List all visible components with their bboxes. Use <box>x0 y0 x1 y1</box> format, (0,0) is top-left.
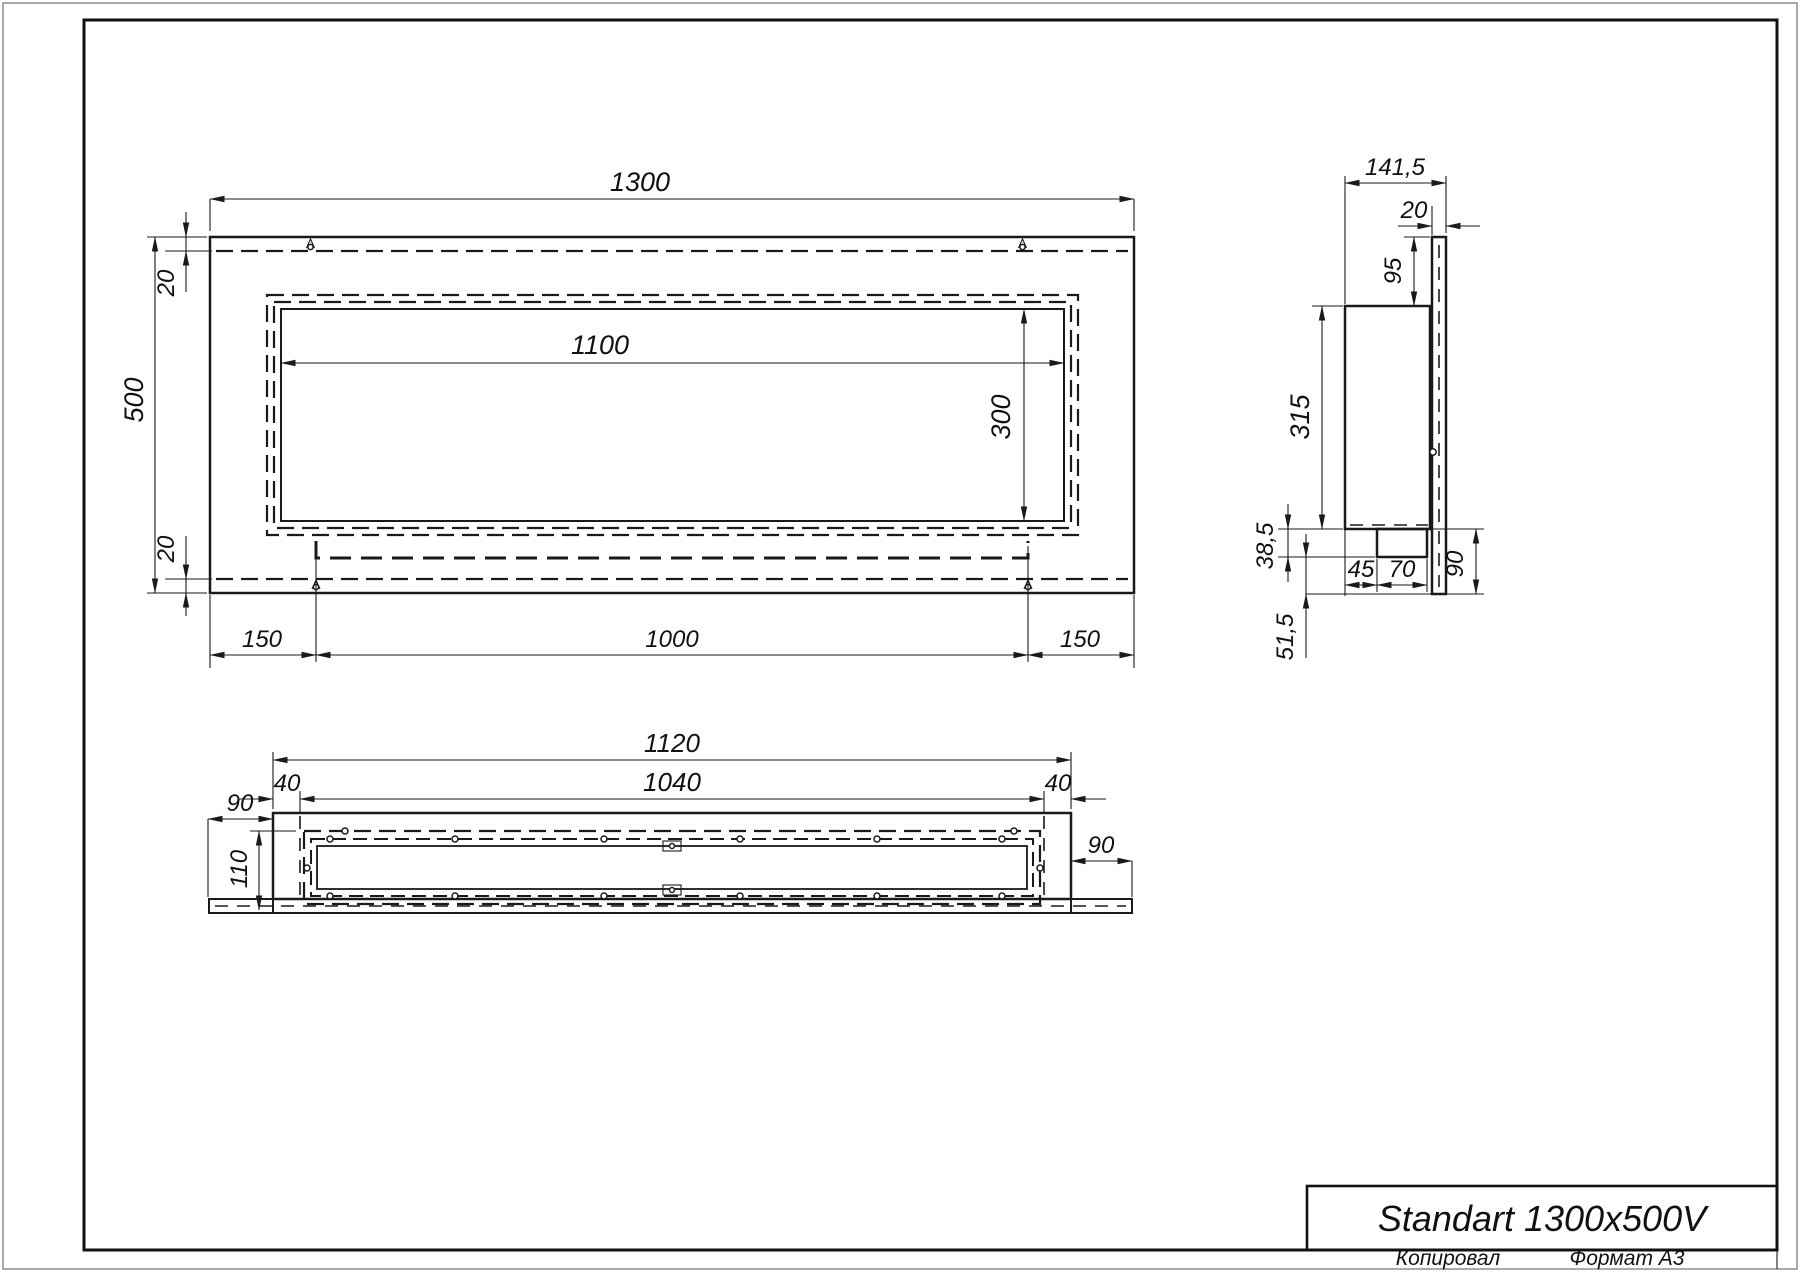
side-view-dimensions: 141,5 20 95 315 38,5 51,5 90 <box>1252 154 1484 660</box>
dim-depth-total: 141,5 <box>1365 154 1426 181</box>
dim-inner-width: 1040 <box>643 767 701 797</box>
dim-left-overhang: 90 <box>227 790 254 817</box>
dim-bottom-height: 90 <box>1442 550 1469 577</box>
screw-hole-icon <box>999 836 1005 842</box>
dim-right-inset: 150 <box>1060 626 1101 653</box>
dim-flange-thickness: 20 <box>1400 197 1428 224</box>
dim-left-plate: 40 <box>274 770 301 797</box>
dim-top-offset: 95 <box>1380 257 1407 284</box>
side-view <box>1306 237 1448 596</box>
dim-tray-depth: 110 <box>226 849 253 888</box>
dim-notch-offset: 45 <box>1348 556 1375 583</box>
screw-hole-icon <box>342 828 348 834</box>
bottom-body <box>273 813 1071 899</box>
screw-hole-icon <box>452 893 458 899</box>
front-view <box>210 237 1134 662</box>
dim-right-overhang: 90 <box>1088 832 1115 859</box>
dim-right-plate: 40 <box>1045 770 1072 797</box>
screw-hole-icon <box>874 893 880 899</box>
title-block: Standart 1300x500V Копировал Формат А3 <box>1307 1186 1777 1270</box>
dim-front-top-flange: 20 <box>153 269 180 297</box>
bottom-view <box>209 813 1132 913</box>
screw-hole-icon <box>327 836 333 842</box>
dim-lower-offset: 51,5 <box>1272 613 1299 660</box>
copied-label: Копировал <box>1396 1247 1501 1270</box>
front-opening-hidden-1 <box>274 302 1071 528</box>
side-body <box>1345 306 1430 529</box>
front-opening <box>281 309 1064 521</box>
dim-front-width: 1300 <box>610 167 670 197</box>
dim-notch-width: 70 <box>1389 556 1416 583</box>
side-hole-icon <box>1430 449 1436 455</box>
screw-hole-icon <box>601 836 607 842</box>
format-label: Формат А3 <box>1570 1247 1685 1270</box>
front-opening-hidden-2 <box>267 295 1078 535</box>
screw-hole-icon <box>737 893 743 899</box>
notch-hole-icon <box>670 888 675 893</box>
screw-hole-icon <box>304 865 310 871</box>
screw-hole-icon <box>327 893 333 899</box>
dim-front-height: 500 <box>119 377 149 422</box>
dim-opening-width: 1100 <box>571 330 629 360</box>
dim-front-bottom-flange: 20 <box>153 535 180 563</box>
tray-opening <box>317 846 1027 889</box>
hole-top-left-icon <box>308 244 313 249</box>
dim-tray-width: 1000 <box>645 626 699 653</box>
front-tray-hidden-line <box>316 541 1028 558</box>
screw-hole-icon <box>999 893 1005 899</box>
hole-top-right-icon <box>1020 244 1025 249</box>
dim-left-inset: 150 <box>242 626 283 653</box>
drawing-title: Standart 1300x500V <box>1378 1198 1709 1239</box>
bottom-view-dimensions: 1120 1040 40 40 90 90 110 <box>208 728 1132 910</box>
screw-hole-icon <box>874 836 880 842</box>
notch-hole-icon <box>670 844 675 849</box>
screw-hole-icon <box>1037 865 1043 871</box>
dim-opening-height: 300 <box>986 394 1016 439</box>
side-tray-notch <box>1377 529 1427 557</box>
screw-hole-icon <box>1011 828 1017 834</box>
dim-tray-drop: 38,5 <box>1252 522 1279 569</box>
screw-hole-icon <box>737 836 743 842</box>
drawing-sheet: 1300 500 20 20 1100 300 150 1000 150 <box>0 0 1800 1273</box>
screw-hole-icon <box>601 893 607 899</box>
dim-body-width: 1120 <box>644 728 700 758</box>
drawing-canvas: 1300 500 20 20 1100 300 150 1000 150 <box>0 0 1800 1273</box>
drawing-frame <box>84 20 1777 1250</box>
screw-hole-icon <box>452 836 458 842</box>
dim-body-height: 315 <box>1285 393 1315 439</box>
